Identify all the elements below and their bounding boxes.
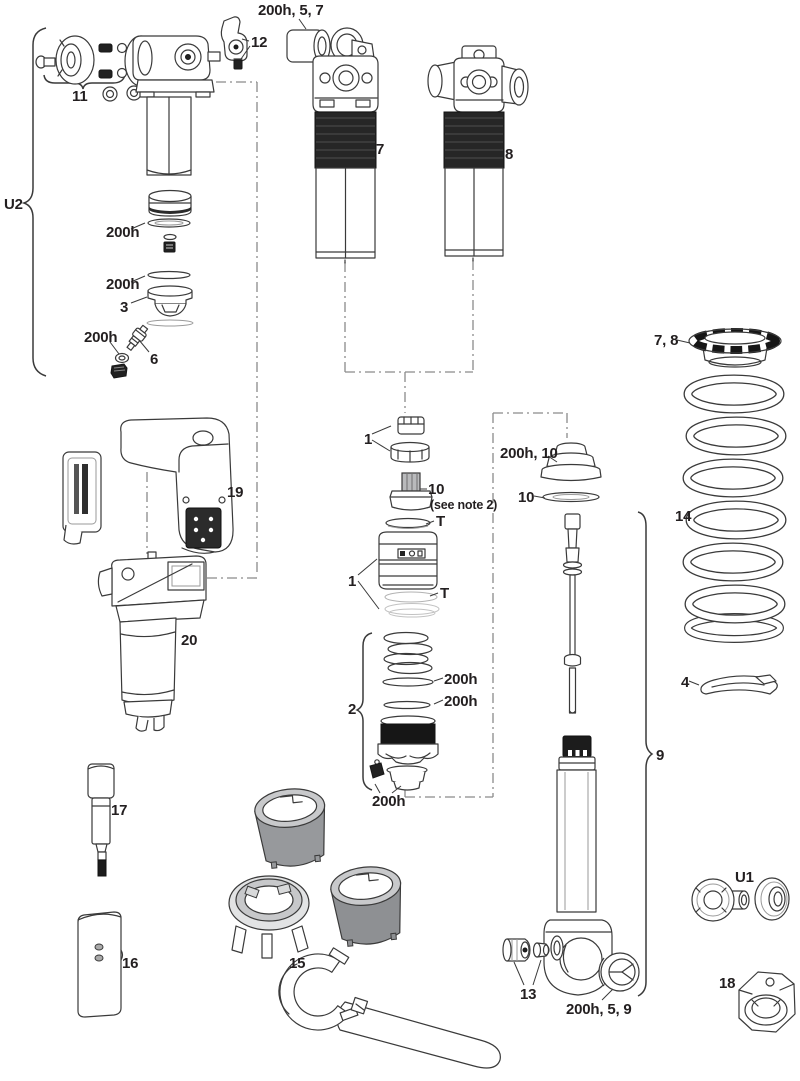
callout-6: 6 <box>150 352 158 367</box>
callout-12: 12 <box>251 35 267 50</box>
part-1-lock-ring <box>391 443 429 463</box>
callout-200h-f: 200h <box>372 794 405 809</box>
callout-19: 19 <box>227 485 243 500</box>
callout-4: 4 <box>681 675 689 690</box>
part-14-coil-spring <box>687 379 782 639</box>
callout-10-ring: 10 <box>518 490 534 505</box>
part-2-coil-spring-small <box>384 633 432 674</box>
part-16-tool <box>78 912 123 1017</box>
callout-200h-e: 200h <box>444 694 477 709</box>
callout-see-note-2: (see note 2) <box>430 499 497 512</box>
callout-8: 8 <box>505 147 513 162</box>
seal-head-ring <box>229 876 309 958</box>
callout-15: 15 <box>289 956 305 971</box>
callout-200h-10: 200h, 10 <box>500 446 558 461</box>
seal-200h-c <box>116 354 129 363</box>
part-12-lever <box>221 17 247 69</box>
exploded-diagram-art <box>0 0 800 1081</box>
callout-t-upper: T <box>436 514 445 529</box>
u2-brace <box>24 28 46 376</box>
callout-18: 18 <box>719 976 735 991</box>
callout-200h-c: 200h <box>84 330 117 345</box>
part-1-canister <box>379 532 437 589</box>
callout-7-8: 7, 8 <box>654 333 678 348</box>
callout-11: 11 <box>72 89 87 104</box>
part-3-piston <box>148 286 192 316</box>
callout-1-lower: 1 <box>348 574 356 589</box>
seal-disc <box>147 320 193 326</box>
part-9-shaft <box>564 514 582 713</box>
callout-200h-b: 200h <box>106 277 139 292</box>
damper-head-assembly <box>133 36 220 175</box>
callout-7: 7 <box>376 142 384 157</box>
seal-200h-d <box>383 678 433 686</box>
spacer-ring <box>385 604 439 618</box>
callout-200h-d: 200h <box>444 672 477 687</box>
callout-u2: U2 <box>4 197 23 212</box>
air-can-sleeve-b <box>329 864 407 948</box>
diagram-canvas: 200h, 5, 7 12 11 U2 7 8 200h 200h 3 200h… <box>0 0 800 1081</box>
part-19-module <box>63 418 233 553</box>
seal-200h-b <box>148 272 190 279</box>
valve-core <box>164 235 176 253</box>
callout-9: 9 <box>656 748 664 763</box>
callout-200h-5-9: 200h, 5, 9 <box>566 1002 632 1017</box>
ring-10 <box>543 493 599 502</box>
callout-14: 14 <box>675 509 691 524</box>
seal-200h-e <box>384 702 430 709</box>
group-9-brace <box>638 512 652 996</box>
damper-body-lower <box>544 736 612 995</box>
part-13-hardware <box>503 939 549 961</box>
callout-3: 3 <box>120 300 128 315</box>
t-seal-lower <box>385 592 437 602</box>
callout-200h-5-7: 200h, 5, 7 <box>258 3 324 18</box>
callout-1-upper: 1 <box>364 432 372 447</box>
callout-16: 16 <box>122 956 138 971</box>
part-15-spanner-wrench <box>279 948 500 1068</box>
callout-10-valve: 10 <box>428 482 444 497</box>
callout-2: 2 <box>348 702 356 717</box>
callout-u1: U1 <box>735 870 754 885</box>
part-4-spring-retainer <box>701 675 777 694</box>
fitting-nut <box>111 364 127 378</box>
piston-foot <box>370 760 427 790</box>
collar-7-8 <box>689 329 781 367</box>
callout-t-lower: T <box>440 586 449 601</box>
part-2-piston <box>378 716 438 764</box>
part-18-cup <box>739 972 795 1032</box>
part-7-shock-body <box>313 28 378 263</box>
part-17-tool <box>88 764 114 876</box>
callout-200h-a: 200h <box>106 225 139 240</box>
air-can-sleeve-a <box>253 786 331 870</box>
air-can-top-cap <box>149 191 191 217</box>
callout-20: 20 <box>181 633 197 648</box>
u1-bushing-b <box>755 878 789 920</box>
part-10-valve-center <box>390 473 432 510</box>
callout-13: 13 <box>520 987 536 1002</box>
t-seal-upper <box>386 519 430 529</box>
part-1-valve-cap <box>398 417 424 434</box>
callout-17: 17 <box>111 803 127 818</box>
seal-200h-a <box>148 219 190 227</box>
